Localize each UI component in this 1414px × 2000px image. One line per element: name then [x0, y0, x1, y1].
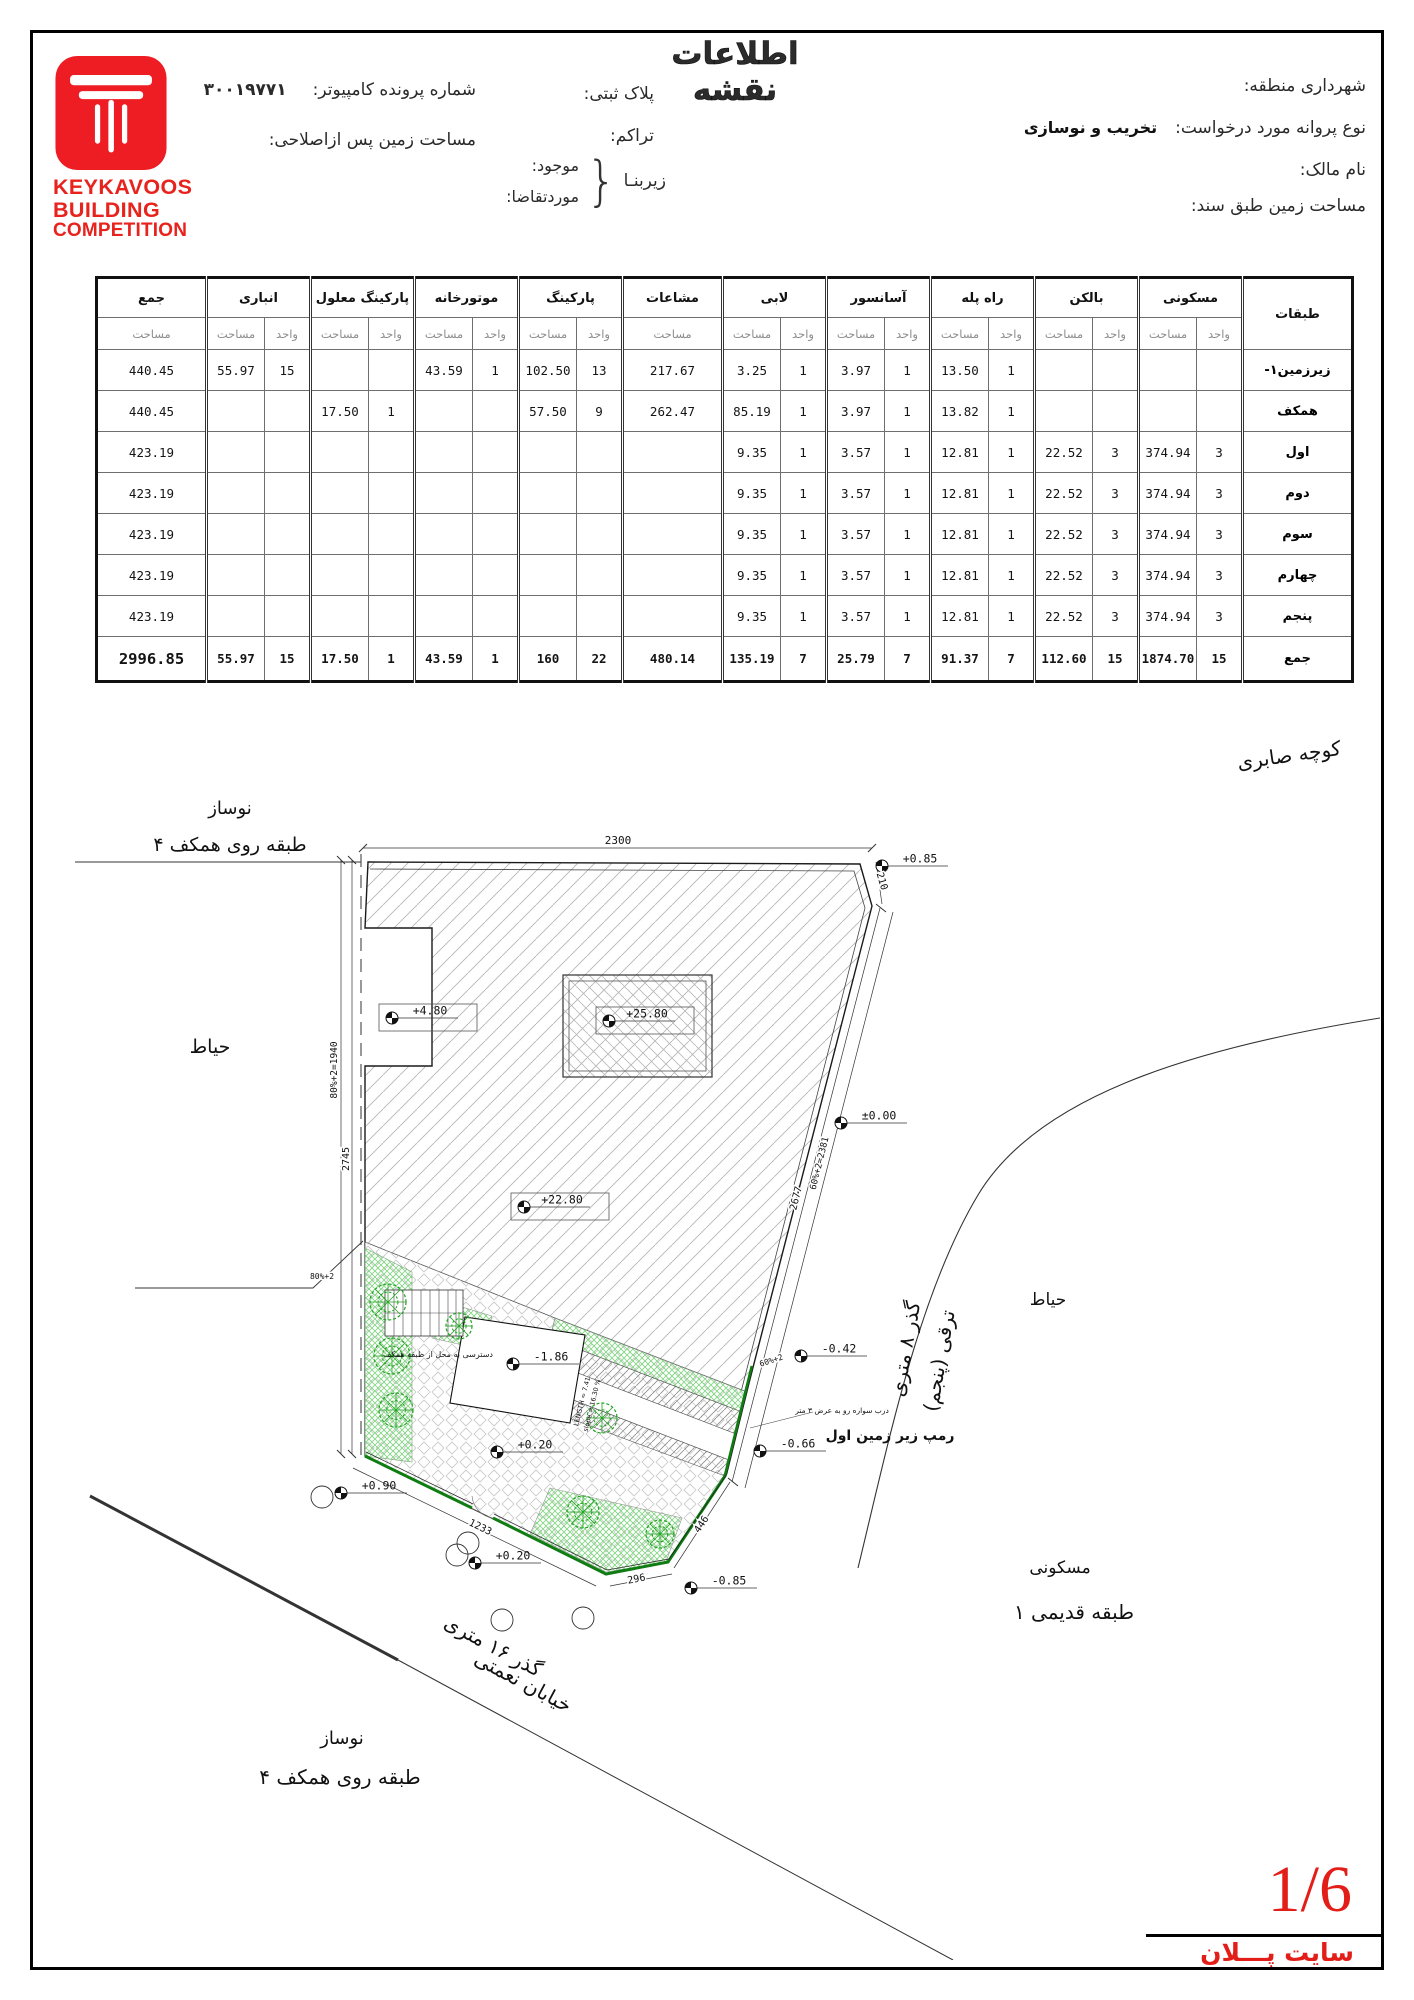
cell: 12.81 — [931, 432, 989, 473]
col-group: پارکینگ معلول — [311, 278, 415, 318]
street-line-thick — [90, 1496, 398, 1660]
drawing-sheet: KEYKAVOOS BUILDING COMPETITION اطلاعات ن… — [0, 0, 1414, 2000]
cell — [623, 432, 723, 473]
cell: 3.57 — [827, 555, 885, 596]
cell — [369, 473, 415, 514]
sheet-name: سایت پـــلان — [1200, 1938, 1354, 1967]
plan-text: ۱ طبقه قدیمی — [1014, 1600, 1134, 1624]
table-row: همکف113.8213.97185.19262.47957.50117.504… — [97, 391, 1353, 432]
svg-text:-1.86: -1.86 — [534, 1350, 569, 1364]
cell: 3.57 — [827, 514, 885, 555]
col-unit: واحد — [473, 318, 519, 350]
cell — [265, 514, 311, 555]
cell: 3 — [1093, 514, 1139, 555]
col-unit: واحد — [989, 318, 1035, 350]
cell: 22.52 — [1035, 432, 1093, 473]
logo-line2: BUILDING — [53, 199, 192, 222]
cell: 1 — [989, 350, 1035, 391]
cell: 1 — [885, 350, 931, 391]
cell — [623, 596, 723, 637]
cell: 1 — [989, 391, 1035, 432]
col-unit: واحد — [1197, 318, 1243, 350]
logo-text: KEYKAVOOS BUILDING COMPETITION — [53, 176, 192, 241]
page-title: اطلاعات نقشه — [630, 36, 840, 108]
elevation-marker: -0.42 — [795, 1342, 867, 1363]
cell — [577, 473, 623, 514]
svg-text:+22.80: +22.80 — [541, 1193, 583, 1207]
roof-rectangle — [563, 975, 712, 1077]
svg-text:+25.80: +25.80 — [626, 1007, 668, 1021]
svg-text:+0.20: +0.20 — [496, 1549, 531, 1563]
cell — [1197, 391, 1243, 432]
col-group: انباری — [207, 278, 311, 318]
cell: 9.35 — [723, 596, 781, 637]
svg-text:±0.00: ±0.00 — [862, 1109, 897, 1123]
cell: 43.59 — [415, 350, 473, 391]
cell: 3.57 — [827, 473, 885, 514]
cell: 423.19 — [97, 514, 207, 555]
tree-icon — [370, 1284, 406, 1320]
file-number-label: شماره پرونده کامپیوتر: — [313, 80, 476, 100]
col-area: مساحت — [723, 318, 781, 350]
cell: 3 — [1197, 555, 1243, 596]
file-number-value: ۳۰۰۱۹۷۷۱ — [204, 80, 287, 100]
cell: 55.97 — [207, 350, 265, 391]
cell: 1 — [989, 432, 1035, 473]
field-municipality: شهرداری منطقه: — [1244, 76, 1366, 96]
col-unit: واحد — [1093, 318, 1139, 350]
cell: 423.19 — [97, 555, 207, 596]
cell — [473, 391, 519, 432]
cell: 12.81 — [931, 596, 989, 637]
cell: 22.52 — [1035, 555, 1093, 596]
cell: 1 — [989, 596, 1035, 637]
cell — [415, 596, 473, 637]
cell: 22.52 — [1035, 473, 1093, 514]
trunk-circle-icon — [457, 1532, 479, 1554]
cell — [369, 596, 415, 637]
cell: 1 — [885, 432, 931, 473]
cell — [473, 473, 519, 514]
trunk-circle-icon — [572, 1607, 594, 1629]
plan-text: کوچه صابری — [1236, 736, 1343, 774]
cell: 374.94 — [1139, 473, 1197, 514]
table-row: چهارم3374.94322.52112.8113.5719.35423.19 — [97, 555, 1353, 596]
col-group: بالکن — [1035, 278, 1139, 318]
cell — [311, 514, 369, 555]
cell: 3.97 — [827, 350, 885, 391]
cell: 9 — [577, 391, 623, 432]
permit-type-value: تخریب و نوسازی — [1024, 118, 1157, 137]
col-floors: طبقات — [1243, 278, 1353, 350]
column-logo-icon — [55, 56, 167, 170]
cell — [415, 432, 473, 473]
cell: 17.50 — [311, 391, 369, 432]
col-area: مساحت — [415, 318, 473, 350]
row-label: سوم — [1243, 514, 1353, 555]
svg-text:+0.90: +0.90 — [362, 1479, 397, 1493]
plan-text: ۴ طبقه روی همکف — [259, 1765, 420, 1789]
col-unit: واحد — [885, 318, 931, 350]
row-label: همکف — [1243, 391, 1353, 432]
requested-label: موردتقاضا: — [506, 187, 579, 206]
cell: 3 — [1197, 473, 1243, 514]
cell: 1 — [781, 473, 827, 514]
cell — [1093, 391, 1139, 432]
cell: 217.67 — [623, 350, 723, 391]
dimension-label: 2300 — [605, 834, 632, 847]
cell — [265, 432, 311, 473]
plan-text: حیاط — [190, 1036, 231, 1058]
trunk-circle-icon — [446, 1544, 468, 1566]
svg-text:+0.20: +0.20 — [518, 1438, 553, 1452]
cell: 374.94 — [1139, 514, 1197, 555]
svg-text:+4.80: +4.80 — [413, 1004, 448, 1018]
row-label: پنجم — [1243, 596, 1353, 637]
cell: 374.94 — [1139, 596, 1197, 637]
col-group: پارکینگ — [519, 278, 623, 318]
basement-label: زیربنـا — [624, 171, 666, 191]
table-row: اول3374.94322.52112.8113.5719.35423.19 — [97, 432, 1353, 473]
cell: 423.19 — [97, 473, 207, 514]
row-label: چهارم — [1243, 555, 1353, 596]
cell — [207, 555, 265, 596]
cell — [1093, 350, 1139, 391]
floor-areas-table: طبقاتمسکونیبالکنراه پلهآسانسورلابیمشاعات… — [95, 276, 1354, 683]
svg-text:-0.66: -0.66 — [781, 1437, 816, 1451]
cell — [473, 432, 519, 473]
cell: 9.35 — [723, 432, 781, 473]
cell: 12.81 — [931, 473, 989, 514]
cell: 423.19 — [97, 432, 207, 473]
brace-glyph: { — [586, 154, 617, 208]
cell: 85.19 — [723, 391, 781, 432]
cell: 12.81 — [931, 514, 989, 555]
cell: 22.52 — [1035, 514, 1093, 555]
cell — [473, 596, 519, 637]
svg-text:-0.42: -0.42 — [822, 1342, 857, 1356]
cell: 1 — [885, 473, 931, 514]
cell: 1 — [885, 391, 931, 432]
cell: 440.45 — [97, 350, 207, 391]
cell — [623, 473, 723, 514]
col-area: مساحت — [207, 318, 265, 350]
svg-text:-0.85: -0.85 — [712, 1574, 747, 1588]
cell — [577, 596, 623, 637]
cell: 3 — [1093, 555, 1139, 596]
cell — [519, 514, 577, 555]
row-label: زیرزمین۱- — [1243, 350, 1353, 391]
cell — [415, 555, 473, 596]
cell: 1 — [989, 473, 1035, 514]
col-area: مساحت — [1035, 318, 1093, 350]
plan-text: درب سواره رو به عرض ۳ متر — [794, 1406, 889, 1415]
field-corrected-area: مساحت زمین پس ازاصلاحی: — [269, 130, 476, 150]
cell: 3.25 — [723, 350, 781, 391]
cell: 13.50 — [931, 350, 989, 391]
cell: 9.35 — [723, 514, 781, 555]
logo-line3: COMPETITION — [53, 221, 192, 241]
dimension-label: 2745 — [341, 1147, 352, 1171]
cell — [311, 473, 369, 514]
cell — [415, 514, 473, 555]
cell — [577, 432, 623, 473]
dimension-label: 80%+2=1940 — [329, 1041, 340, 1098]
dimension-label: 296 — [627, 1572, 647, 1586]
cell — [369, 514, 415, 555]
col-unit: واحد — [265, 318, 311, 350]
cell: 1 — [781, 596, 827, 637]
trunk-circle-icon — [311, 1486, 333, 1508]
row-label: دوم — [1243, 473, 1353, 514]
cell: 374.94 — [1139, 555, 1197, 596]
cell — [311, 555, 369, 596]
col-area: مساحت — [623, 318, 723, 350]
plan-text: نوساز — [207, 798, 252, 819]
elevation-marker: +0.85 — [876, 852, 948, 873]
cell: 13.82 — [931, 391, 989, 432]
cell — [1197, 350, 1243, 391]
site-plan-drawing: +4.80+25.80+22.80+0.85±0.00-0.42-0.66-0.… — [60, 650, 1380, 1960]
street-line-thin — [398, 1660, 953, 1960]
table-row: دوم3374.94322.52112.8113.5719.35423.19 — [97, 473, 1353, 514]
logo-line1: KEYKAVOOS — [53, 176, 192, 199]
cell — [369, 350, 415, 391]
cell: 1 — [781, 432, 827, 473]
plan-text: حیاط — [1030, 1290, 1067, 1310]
cell: 1 — [885, 555, 931, 596]
cell — [207, 391, 265, 432]
cell: 9.35 — [723, 473, 781, 514]
field-file-number: شماره پرونده کامپیوتر:۳۰۰۱۹۷۷۱ — [204, 80, 476, 100]
dimension-label: 1233 — [467, 1518, 493, 1538]
table-row: زیرزمین۱-113.5013.9713.25217.6713102.501… — [97, 350, 1353, 391]
cell — [265, 596, 311, 637]
col-area: مساحت — [1139, 318, 1197, 350]
sheet-number: 1/6 — [1268, 1852, 1352, 1928]
cell: 102.50 — [519, 350, 577, 391]
elevation-marker: -0.85 — [685, 1574, 757, 1595]
elevation-marker: ±0.00 — [835, 1109, 907, 1130]
cell: 423.19 — [97, 596, 207, 637]
cell — [519, 473, 577, 514]
trunk-circle-icon — [491, 1609, 513, 1631]
cell: 3 — [1197, 514, 1243, 555]
elevation-marker: +0.20 — [469, 1549, 541, 1570]
field-permit-type: نوع پروانه مورد درخواست:تخریب و نوسازی — [1024, 118, 1366, 138]
plan-text: مسکونی — [1029, 1558, 1090, 1578]
footer-divider — [1146, 1934, 1382, 1937]
field-density: تراکم: — [610, 126, 654, 146]
cell — [369, 555, 415, 596]
tree-icon — [379, 1393, 413, 1427]
cell — [207, 596, 265, 637]
plan-text: دسترسی به محل از طبقه همکف — [383, 1350, 493, 1359]
cell — [265, 473, 311, 514]
plan-text: نوساز — [319, 1728, 364, 1749]
plan-text: رمپ زیر زمین اول — [826, 1428, 955, 1444]
cell — [577, 555, 623, 596]
col-unit: واحد — [577, 318, 623, 350]
col-area: مساحت — [931, 318, 989, 350]
col-group: راه پله — [931, 278, 1035, 318]
col-area: مساحت — [97, 318, 207, 350]
col-group: آسانسور — [827, 278, 931, 318]
col-group: مسکونی — [1139, 278, 1243, 318]
cell — [623, 555, 723, 596]
cell — [207, 514, 265, 555]
cell: 1 — [885, 596, 931, 637]
cell: 3.57 — [827, 432, 885, 473]
cell — [473, 514, 519, 555]
cell — [1035, 391, 1093, 432]
logo — [55, 56, 167, 174]
cell: 1 — [781, 555, 827, 596]
cell: 440.45 — [97, 391, 207, 432]
cell: 22.52 — [1035, 596, 1093, 637]
cell — [369, 432, 415, 473]
cell — [519, 596, 577, 637]
cell: 3 — [1093, 596, 1139, 637]
cell: 15 — [265, 350, 311, 391]
cell — [311, 432, 369, 473]
cell: 1 — [781, 391, 827, 432]
cell: 12.81 — [931, 555, 989, 596]
cell — [623, 514, 723, 555]
col-group: جمع — [97, 278, 207, 318]
plan-text: ترقی (پنجم) — [918, 1308, 960, 1413]
dimension-label: 210 — [874, 871, 890, 891]
cell: 1 — [473, 350, 519, 391]
cell — [265, 391, 311, 432]
cell — [1139, 350, 1197, 391]
col-area: مساحت — [519, 318, 577, 350]
field-deed-area: مساحت زمین طبق سند: — [1191, 196, 1366, 216]
col-group: لابی — [723, 278, 827, 318]
cell: 1 — [369, 391, 415, 432]
cell: 1 — [781, 350, 827, 391]
plan-text: ۴ طبقه روی همکف — [153, 834, 306, 856]
cell: 3.57 — [827, 596, 885, 637]
field-floor-area: زیربنـا { موجود: موردتقاضا: — [506, 156, 666, 206]
dimension-label: 60%+2 — [758, 1353, 784, 1369]
cell: 3.97 — [827, 391, 885, 432]
col-group: مشاعات — [623, 278, 723, 318]
col-group: موتورخانه — [415, 278, 519, 318]
col-area: مساحت — [311, 318, 369, 350]
cell — [473, 555, 519, 596]
field-plate: پلاک ثبتی: — [584, 84, 654, 104]
plan-text: گذر ۸ متری — [885, 1299, 925, 1399]
cell — [1035, 350, 1093, 391]
cell — [519, 555, 577, 596]
cell: 3 — [1197, 432, 1243, 473]
cell — [519, 432, 577, 473]
cell: 1 — [989, 514, 1035, 555]
cell: 13 — [577, 350, 623, 391]
cell: 3 — [1093, 473, 1139, 514]
cell: 1 — [989, 555, 1035, 596]
cell: 1 — [781, 514, 827, 555]
row-label: اول — [1243, 432, 1353, 473]
cell: 3 — [1093, 432, 1139, 473]
cell: 262.47 — [623, 391, 723, 432]
cell: 9.35 — [723, 555, 781, 596]
table-row: پنجم3374.94322.52112.8113.5719.35423.19 — [97, 596, 1353, 637]
cell — [577, 514, 623, 555]
tree-icon — [446, 1313, 472, 1339]
table-row: سوم3374.94322.52112.8113.5719.35423.19 — [97, 514, 1353, 555]
col-unit: واحد — [781, 318, 827, 350]
tree-icon — [646, 1520, 674, 1548]
cell: 57.50 — [519, 391, 577, 432]
cell — [415, 473, 473, 514]
cell: 3 — [1197, 596, 1243, 637]
cell: 1 — [885, 514, 931, 555]
tree-icon — [567, 1496, 599, 1528]
elevation-marker: -0.66 — [754, 1437, 826, 1458]
cell — [311, 350, 369, 391]
col-area: مساحت — [827, 318, 885, 350]
cell — [415, 391, 473, 432]
cell — [207, 473, 265, 514]
permit-type-label: نوع پروانه مورد درخواست: — [1175, 118, 1366, 138]
existing-label: موجود: — [506, 156, 579, 175]
cell — [207, 432, 265, 473]
curved-road-line — [858, 1018, 1380, 1568]
elevation-marker: +0.90 — [335, 1479, 407, 1500]
cell — [311, 596, 369, 637]
cell — [265, 555, 311, 596]
col-unit: واحد — [369, 318, 415, 350]
dimension-label: 80%+2 — [310, 1272, 334, 1281]
cell: 374.94 — [1139, 432, 1197, 473]
svg-text:+0.85: +0.85 — [903, 852, 938, 866]
field-owner: نام مالک: — [1300, 160, 1366, 180]
cell — [1139, 391, 1197, 432]
